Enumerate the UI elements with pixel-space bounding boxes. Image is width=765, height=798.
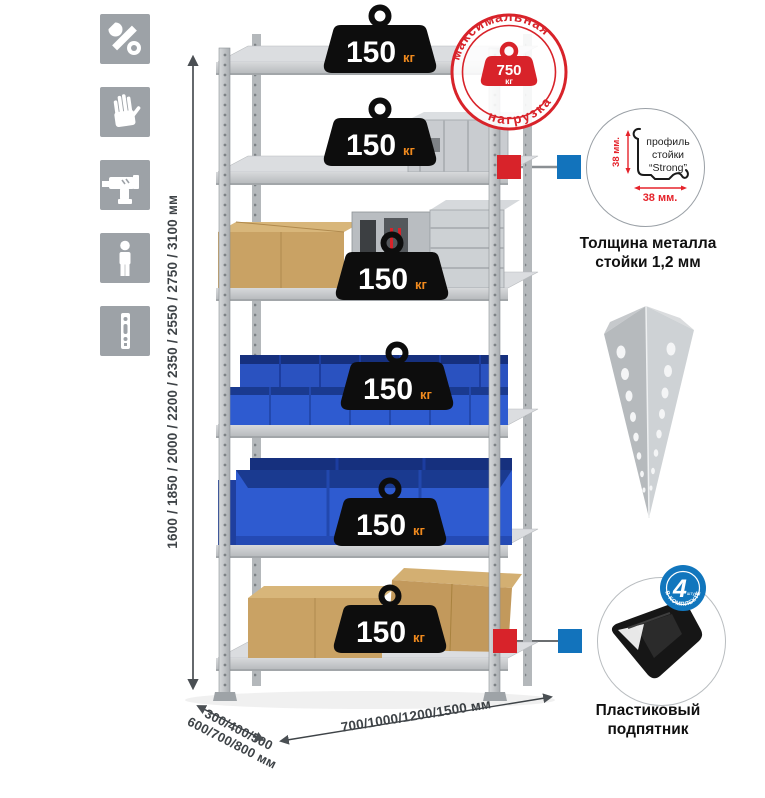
max-load-stamp: максимальная нагрузка 750 кг: [443, 6, 575, 138]
shelf-load-weight-3: 150 кг: [327, 231, 457, 309]
callout-marker-red-top: [497, 155, 521, 179]
shelving-product-infographic: { "left_icons": [ {"name": "wrench"}, {"…: [0, 0, 765, 765]
weight-unit: кг: [415, 277, 428, 292]
weight-unit: кг: [403, 143, 416, 158]
weight-value: 150: [356, 509, 406, 542]
depth-dimension-arrow: [198, 706, 263, 740]
profile-dim-vertical: 38 мм.: [611, 137, 622, 167]
profile-label-1: профиль: [646, 136, 690, 148]
profile-dim-horizontal: 38 мм.: [643, 192, 678, 204]
plastic-foot-caption: Пластиковый подпятник: [564, 701, 732, 740]
profile-label-3: “Strong”: [649, 162, 687, 174]
shelf-load-weight-1: 150 кг: [315, 4, 445, 82]
shelf-load-weight-5: 150 кг: [325, 477, 455, 555]
weight-unit: кг: [413, 630, 426, 645]
shelf-load-weight-4: 150 кг: [332, 341, 462, 419]
rack-foot-right: [483, 692, 507, 701]
weight-unit: кг: [403, 50, 416, 65]
shelf-load-weight-2: 150 кг: [315, 97, 445, 175]
badge-count: 4: [672, 575, 687, 603]
weight-unit: кг: [420, 387, 433, 402]
weight-value: 150: [363, 373, 413, 406]
weight-value: 150: [346, 36, 396, 69]
weight-unit: кг: [413, 523, 426, 538]
included-count-badge: 4 штуки в комплекте: [659, 564, 707, 612]
callout-marker-blue-top: [557, 155, 581, 179]
rack-foot-left: [213, 692, 237, 701]
callout-marker-blue-bottom: [558, 629, 582, 653]
corner-post-image: [604, 306, 694, 518]
stamp-unit: кг: [505, 76, 513, 86]
shelf-load-weight-6: 150 кг: [325, 584, 455, 662]
weight-value: 150: [358, 263, 408, 296]
callout-marker-red-bottom: [493, 629, 517, 653]
profile-caption: Толщина металла стойки 1,2 мм: [558, 234, 738, 273]
weight-handle: [372, 8, 389, 25]
post-profile-detail: 38 мм. 38 мм. профиль стойки “Strong”: [586, 108, 705, 227]
weight-value: 150: [356, 616, 406, 649]
weight-value: 150: [346, 129, 396, 162]
profile-label-2: стойки: [652, 149, 684, 161]
